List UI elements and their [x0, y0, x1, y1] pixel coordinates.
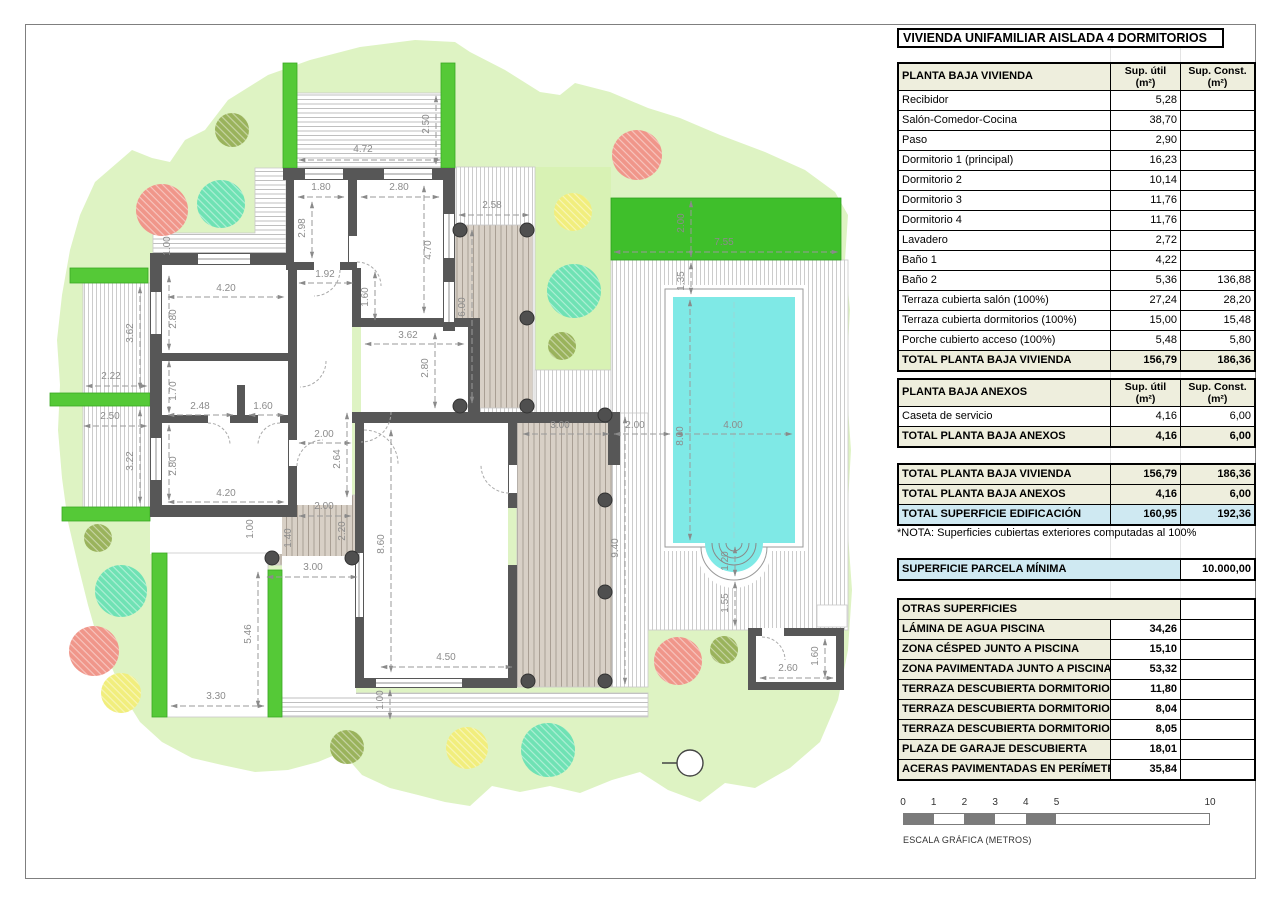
table-row: LÁMINA DE AGUA PISCINA34,26 — [899, 619, 1254, 639]
svg-text:2.22: 2.22 — [101, 371, 121, 382]
svg-text:1.35: 1.35 — [676, 271, 687, 291]
table-row: Dormitorio 411,76 — [899, 210, 1254, 230]
svg-text:3.30: 3.30 — [206, 691, 226, 702]
area-table-totales: TOTAL PLANTA BAJA VIVIENDA156,79186,36TO… — [897, 463, 1256, 526]
svg-text:1.60: 1.60 — [810, 646, 821, 666]
table-row: Recibidor5,28 — [899, 90, 1254, 110]
svg-text:2.80: 2.80 — [389, 182, 409, 193]
pool-skimmer-box — [817, 605, 847, 627]
svg-text:4.20: 4.20 — [216, 488, 236, 499]
area-table-anexos: PLANTA BAJA ANEXOSSup. útil(m²)Sup. Cons… — [897, 378, 1256, 448]
svg-text:4.20: 4.20 — [216, 283, 236, 294]
svg-text:9.40: 9.40 — [610, 538, 621, 558]
table-row: Salón-Comedor-Cocina38,70 — [899, 110, 1254, 130]
table-row: Paso2,90 — [899, 130, 1254, 150]
scale-segment — [964, 813, 995, 825]
graphic-scale: 01234510 ESCALA GRÁFICA (METROS) — [903, 797, 1210, 847]
table-row: SUPERFICIE PARCELA MÍNIMA10.000,00 — [899, 560, 1254, 579]
svg-text:3.00: 3.00 — [303, 562, 323, 573]
scale-tick: 10 — [1204, 797, 1215, 808]
svg-text:2.64: 2.64 — [332, 449, 343, 469]
svg-text:8.00: 8.00 — [675, 426, 686, 446]
svg-text:2.00: 2.00 — [314, 429, 334, 440]
table-row: TOTAL PLANTA BAJA ANEXOS4,166,00 — [899, 426, 1254, 446]
walkway — [282, 693, 648, 717]
table-row: TOTAL SUPERFICIE EDIFICACIÓN160,95192,36 — [899, 504, 1254, 524]
svg-text:3.62: 3.62 — [398, 330, 418, 341]
svg-text:6.00: 6.00 — [457, 297, 468, 317]
table-row: Dormitorio 1 (principal)16,23 — [899, 150, 1254, 170]
svg-text:1.80: 1.80 — [311, 182, 331, 193]
table-row: Caseta de servicio4,166,00 — [899, 406, 1254, 426]
table-row: Terraza cubierta dormitorios (100%)15,00… — [899, 310, 1254, 330]
svg-text:5.46: 5.46 — [243, 624, 254, 644]
svg-text:2.50: 2.50 — [100, 411, 120, 422]
plan-sheet: 4.722.501.802.802.984.702.581.921.604.20… — [0, 0, 1280, 905]
svg-text:1.55: 1.55 — [720, 593, 731, 613]
table-row: TERRAZA DESCUBIERTA DORMITORIO 38,04 — [899, 699, 1254, 719]
scale-tick: 5 — [1054, 797, 1060, 808]
scale-tick: 3 — [992, 797, 998, 808]
svg-text:1.00: 1.00 — [162, 236, 173, 256]
table-row: ZONA CÉSPED JUNTO A PISCINA15,10 — [899, 639, 1254, 659]
scale-label: ESCALA GRÁFICA (METROS) — [903, 835, 1032, 845]
area-table-vivienda: PLANTA BAJA VIVIENDASup. útil(m²)Sup. Co… — [897, 62, 1256, 372]
svg-text:8.60: 8.60 — [376, 534, 387, 554]
table-row: Baño 25,36136,88 — [899, 270, 1254, 290]
table-row: TOTAL PLANTA BAJA VIVIENDA156,79186,36 — [899, 350, 1254, 370]
svg-text:4.00: 4.00 — [723, 420, 743, 431]
svg-text:2.80: 2.80 — [420, 358, 431, 378]
svg-text:1.60: 1.60 — [253, 401, 273, 412]
table-row: Porche cubierto acceso (100%)5,485,80 — [899, 330, 1254, 350]
svg-text:3.00: 3.00 — [550, 420, 570, 431]
table-header: PLANTA BAJA VIVIENDASup. útil(m²)Sup. Co… — [899, 64, 1254, 90]
cesped-strip — [611, 198, 841, 260]
parcela-minima-row: SUPERFICIE PARCELA MÍNIMA10.000,00 — [897, 558, 1256, 581]
table-row: TOTAL PLANTA BAJA ANEXOS4,166,00 — [899, 484, 1254, 504]
covered-terrace-salon — [517, 413, 612, 687]
svg-text:1.70: 1.70 — [168, 381, 179, 401]
table-row: Dormitorio 311,76 — [899, 190, 1254, 210]
svg-text:7.55: 7.55 — [714, 237, 734, 248]
scale-tick: 1 — [931, 797, 937, 808]
svg-text:2.48: 2.48 — [190, 401, 210, 412]
scale-tick: 2 — [962, 797, 968, 808]
svg-text:1.00: 1.00 — [245, 519, 256, 539]
deck-corner — [535, 370, 611, 413]
svg-text:2.00: 2.00 — [314, 501, 334, 512]
svg-text:1.60: 1.60 — [360, 287, 371, 307]
svg-text:2.50: 2.50 — [421, 114, 432, 134]
svg-text:4.72: 4.72 — [353, 144, 373, 155]
svg-text:1.20: 1.20 — [720, 551, 731, 571]
scale-tick: 4 — [1023, 797, 1029, 808]
svg-text:2.20: 2.20 — [337, 521, 348, 541]
drawing-title: VIVIENDA UNIFAMILIAR AISLADA 4 DORMITORI… — [897, 28, 1224, 48]
svg-text:4.50: 4.50 — [436, 652, 456, 663]
note-text: *NOTA: Superficies cubiertas exteriores … — [897, 527, 1196, 539]
table-row: Terraza cubierta salón (100%)27,2428,20 — [899, 290, 1254, 310]
table-row: Dormitorio 210,14 — [899, 170, 1254, 190]
svg-text:2.60: 2.60 — [778, 663, 798, 674]
svg-text:2.00: 2.00 — [625, 420, 645, 431]
svg-text:2.80: 2.80 — [168, 456, 179, 476]
table-row: Lavadero2,72 — [899, 230, 1254, 250]
scale-tick: 0 — [900, 797, 906, 808]
svg-text:3.62: 3.62 — [125, 323, 136, 343]
table-header: PLANTA BAJA ANEXOSSup. útil(m²)Sup. Cons… — [899, 380, 1254, 406]
caseta-de-servicio — [748, 628, 844, 690]
table-row: PLAZA DE GARAJE DESCUBIERTA18,01 — [899, 739, 1254, 759]
svg-text:1.92: 1.92 — [315, 269, 335, 280]
otras-superficies-table: OTRAS SUPERFICIESLÁMINA DE AGUA PISCINA3… — [897, 598, 1256, 781]
svg-text:2.00: 2.00 — [676, 213, 687, 233]
table-row: TOTAL PLANTA BAJA VIVIENDA156,79186,36 — [899, 465, 1254, 484]
svg-text:2.98: 2.98 — [297, 218, 308, 238]
table-row: ACERAS PAVIMENTADAS EN PERÍMETRO35,84 — [899, 759, 1254, 779]
scale-segment — [1026, 813, 1057, 825]
table-row: OTRAS SUPERFICIES — [899, 600, 1254, 619]
svg-text:3.22: 3.22 — [125, 451, 136, 471]
scale-bar — [903, 813, 1210, 825]
table-row: TERRAZA DESCUBIERTA DORMITORIO 111,80 — [899, 679, 1254, 699]
svg-text:4.70: 4.70 — [423, 240, 434, 260]
svg-text:1.00: 1.00 — [375, 690, 386, 710]
table-row: Baño 14,22 — [899, 250, 1254, 270]
svg-text:2.80: 2.80 — [168, 309, 179, 329]
svg-text:1.40: 1.40 — [283, 528, 294, 548]
table-row: TERRAZA DESCUBIERTA DORMITORIO 48,05 — [899, 719, 1254, 739]
table-row: ZONA PAVIMENTADA JUNTO A PISCINA53,32 — [899, 659, 1254, 679]
scale-segment — [903, 813, 934, 825]
svg-text:2.58: 2.58 — [482, 200, 502, 211]
